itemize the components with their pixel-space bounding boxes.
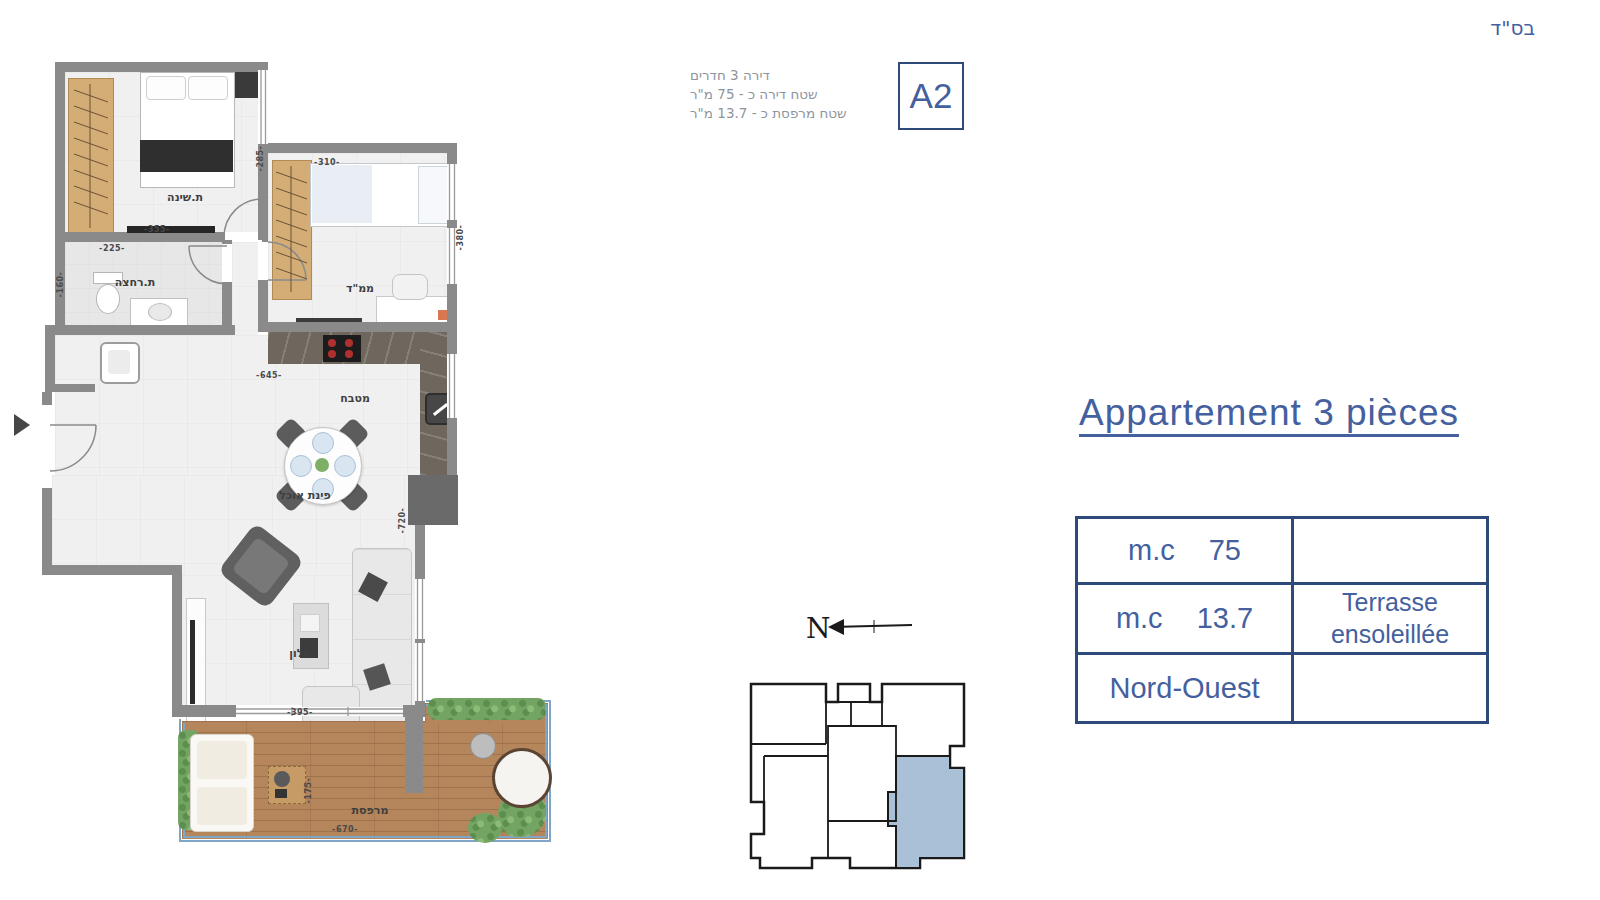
dim-bath-height: -160- (56, 263, 65, 307)
dim-terrace-width: -670- (323, 825, 367, 834)
potted-plants (468, 813, 502, 843)
unit-badge: A2 (898, 62, 964, 130)
spec-cell-terrace-area: m.c 13.7 (1078, 585, 1294, 656)
wall-segment (258, 143, 457, 153)
room-label-dining: פינת אוכל (270, 489, 340, 502)
spec-label: m.c (1128, 534, 1175, 567)
spec-cell-empty (1294, 519, 1486, 585)
desk-chair (392, 274, 428, 300)
plate (290, 455, 312, 477)
wall-segment (45, 384, 95, 392)
plate (334, 455, 356, 477)
burner-icon (345, 339, 353, 347)
lounger-cushion (197, 741, 247, 779)
dim-bedroom-width: -355- (135, 225, 179, 234)
pillow (418, 166, 448, 224)
entry-arrow-icon (14, 414, 30, 436)
bed-blanket (140, 140, 233, 172)
coffee-table-item (300, 614, 320, 632)
sofa (352, 548, 412, 728)
wall-segment (222, 240, 232, 244)
spec-value: 13.7 (1197, 602, 1253, 635)
dim-kitchen-width: -645- (247, 371, 291, 380)
corridor-floor (232, 242, 258, 335)
dim-bath-width: -225- (90, 244, 134, 253)
wall-segment (268, 322, 457, 332)
spec-cell-empty (1294, 655, 1486, 721)
wall-segment (42, 565, 182, 575)
wall-segment (172, 705, 236, 717)
grill-box (275, 789, 287, 798)
spec-label: m.c (1116, 602, 1163, 635)
terrace-wall-stub (405, 717, 423, 793)
info-line-terrace: שטח מרפסת כ - 13.7 מ"ר (690, 104, 880, 123)
tv (190, 620, 195, 704)
spec-cell-terrace-note: Terrasse ensoleillée (1294, 585, 1486, 656)
wall-segment (447, 332, 457, 475)
room-label-kitchen: מטבח (330, 392, 380, 405)
dim-living-height: -720- (398, 499, 407, 543)
hedge-plants (428, 698, 546, 720)
highlighted-unit (888, 756, 964, 868)
room-label-bathroom: ת.רחצה (105, 276, 165, 289)
wall-segment (45, 325, 235, 335)
wall-segment (172, 565, 182, 715)
dim-mamad-height: -380- (456, 216, 465, 260)
lounger (190, 734, 254, 832)
burner-icon (328, 339, 336, 347)
floor-plan: ת.שינה ת.רחצה ממ"ד מטבח פינת אוכל סלון מ… (30, 58, 560, 850)
room-label-living: סלון (275, 647, 325, 660)
wall-segment (258, 280, 268, 332)
page: בס"ד דירה 3 חדרים שטח דירה כ - 75 מ"ר שט… (0, 0, 1600, 900)
plant-pot (470, 733, 496, 759)
pillow (146, 76, 186, 100)
room-label-bedroom: ת.שינה (150, 191, 220, 204)
apartment-info: דירה 3 חדרים שטח דירה כ - 75 מ"ר שטח מרפ… (690, 66, 880, 123)
page-title: Appartement 3 pièces (1048, 392, 1490, 434)
room-label-terrace: מרפסת (340, 804, 400, 817)
wall-segment (42, 392, 52, 405)
wardrobe (68, 78, 114, 235)
lounger-cushion (197, 787, 247, 825)
room-label-mamad: ממ"ד (335, 282, 385, 295)
spec-table: m.c 75 m.c 13.7 Terrasse ensoleillée Nor… (1075, 516, 1489, 724)
pillow (188, 76, 228, 100)
wall-segment (403, 705, 425, 717)
burner-icon (345, 350, 353, 358)
wall-segment (408, 475, 458, 525)
table-centerpiece (315, 458, 329, 472)
wall-segment (42, 488, 52, 575)
grill (274, 771, 290, 787)
dim-bedroom-height: -285- (256, 137, 265, 181)
washing-machine-drum (108, 350, 130, 374)
spec-cell-area: m.c 75 (1078, 519, 1294, 585)
armchair-seat (232, 537, 291, 596)
dim-terrace-height: -175- (304, 769, 313, 813)
cooktop (323, 335, 361, 362)
spec-value: 75 (1209, 534, 1241, 567)
grill-table (268, 766, 306, 804)
north-label: N (806, 612, 831, 645)
spec-cell-orientation: Nord-Ouest (1078, 655, 1294, 721)
dim-mamad-width: -310- (305, 158, 349, 167)
key-plan: N (728, 596, 974, 872)
bed-duvet (312, 165, 372, 223)
spec-note-line: ensoleillée (1331, 619, 1449, 649)
spec-note-line: Terrasse (1342, 587, 1438, 617)
terrace-table (492, 748, 552, 808)
north-arrow: N (806, 612, 912, 645)
wardrobe (272, 160, 312, 300)
plate (312, 432, 334, 454)
info-line-rooms: דירה 3 חדרים (690, 66, 880, 85)
wall-segment (415, 525, 425, 705)
sink-basin (148, 303, 172, 321)
bsd-text: בס"ד (1440, 16, 1535, 40)
spec-label: Nord-Ouest (1110, 672, 1260, 705)
info-line-area: שטח דירה כ - 75 מ"ר (690, 85, 880, 104)
wall-segment (55, 62, 268, 72)
dim-living-width: -395- (278, 708, 322, 717)
burner-icon (328, 350, 336, 358)
